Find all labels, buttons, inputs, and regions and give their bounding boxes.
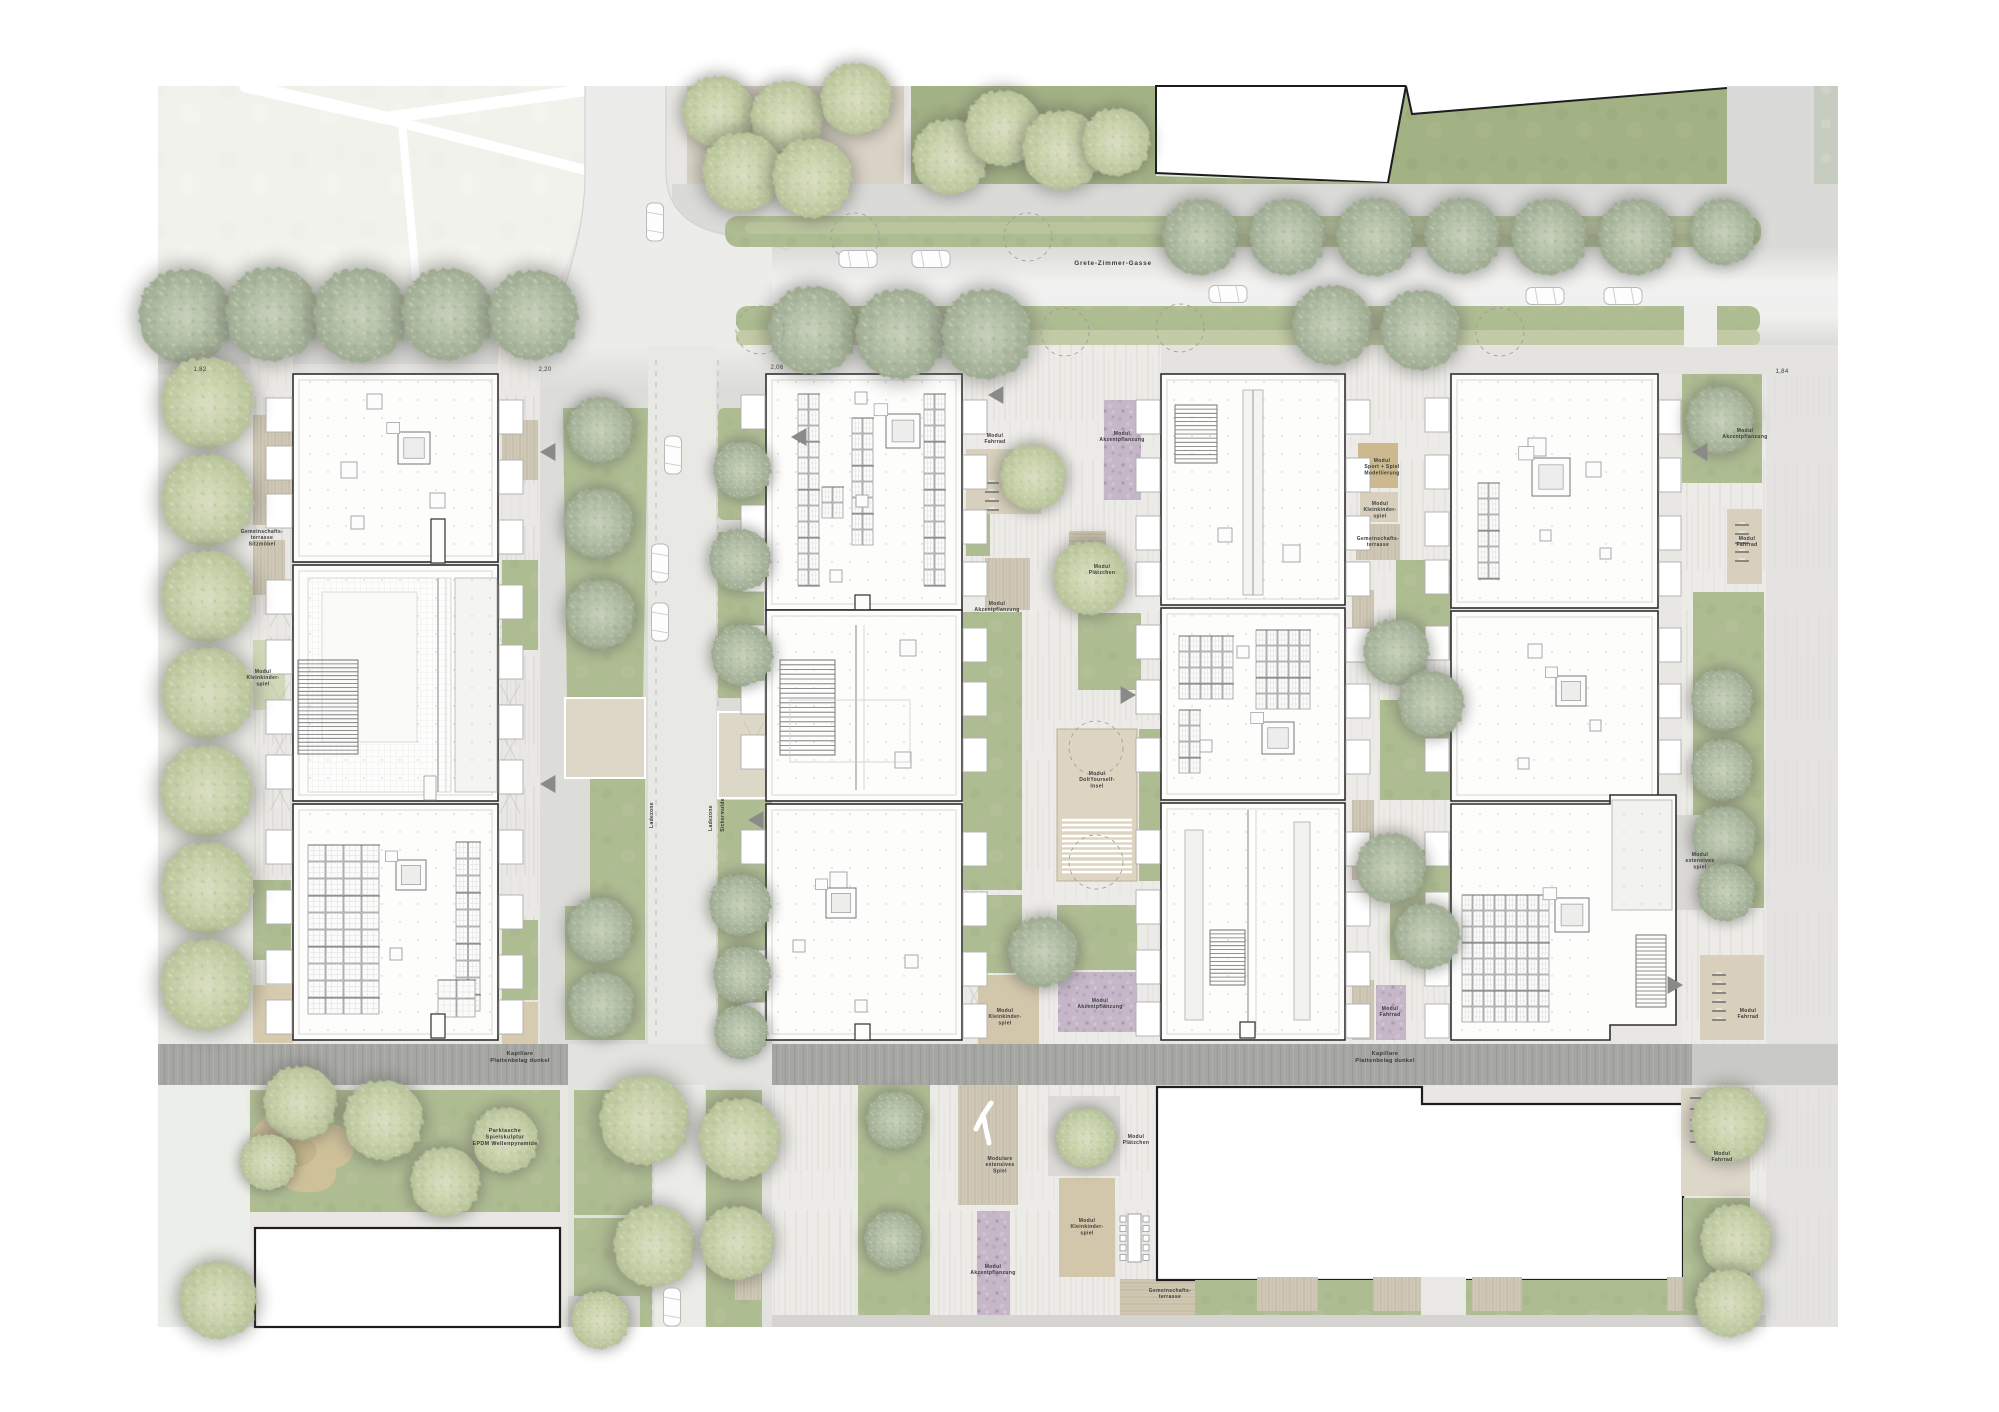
- svg-text:Grete-Zimmer-Gasse: Grete-Zimmer-Gasse: [1074, 260, 1152, 267]
- svg-text:ModulFahrrad: ModulFahrrad: [1736, 536, 1757, 548]
- svg-text:2,06: 2,06: [770, 365, 783, 371]
- svg-text:ModulFahrrad: ModulFahrrad: [984, 433, 1005, 445]
- svg-text:ModulFahrrad: ModulFahrrad: [1379, 1006, 1400, 1018]
- svg-text:1,84: 1,84: [1775, 369, 1788, 375]
- svg-text:Ladezone: Ladezone: [649, 802, 655, 828]
- svg-text:ModulFahrrad: ModulFahrrad: [1737, 1008, 1758, 1020]
- svg-text:Sickermulde: Sickermulde: [720, 798, 726, 832]
- svg-text:Ladezone: Ladezone: [708, 805, 714, 831]
- svg-text:ModulFahrrad: ModulFahrrad: [1711, 1151, 1732, 1163]
- svg-text:1,82: 1,82: [193, 367, 206, 373]
- svg-text:2,20: 2,20: [538, 367, 551, 373]
